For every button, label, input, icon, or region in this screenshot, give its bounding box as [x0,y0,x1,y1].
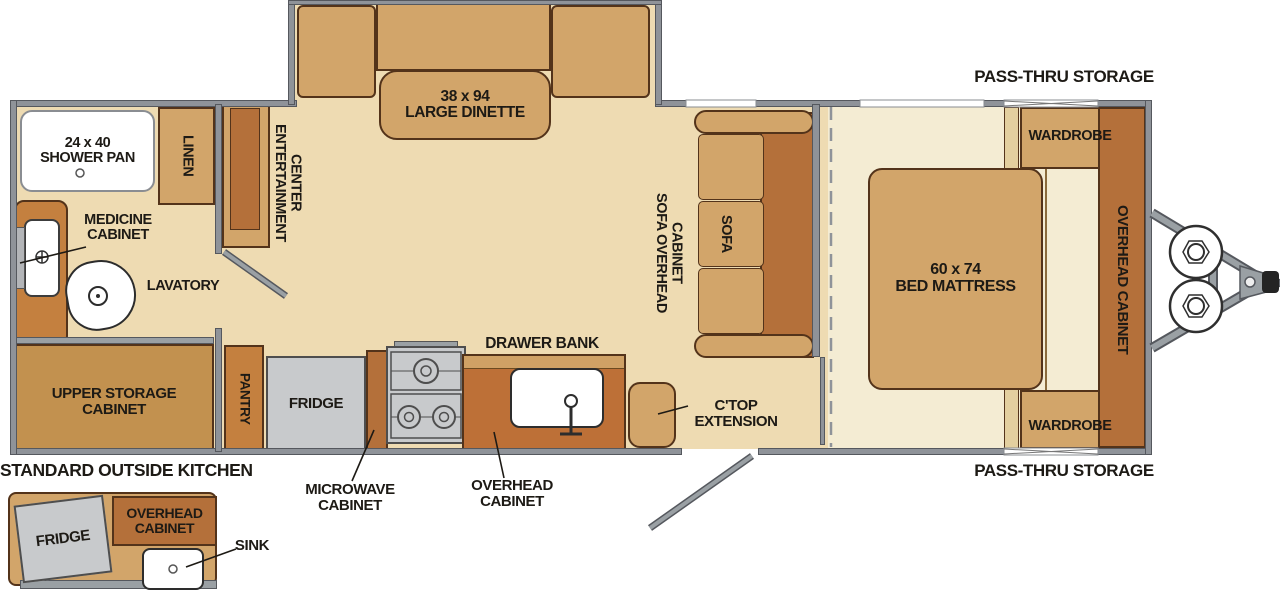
propane-tank-valve [1188,244,1204,260]
slideout-wall-left [288,0,295,105]
bathroom-wall-upper [215,104,222,254]
dinette-name-label: LARGE DINETTE [405,105,525,121]
pantry-label: PANTRY [237,373,252,425]
microwave-label-1: MICROWAVE [294,482,406,498]
outside-overhead-label-2: CABINET [135,521,194,536]
entertainment-label-2: CENTER [287,124,303,242]
bedroom-overhead-cabinet-label: OVERHEAD CABINET [1114,205,1130,354]
overhead-cabinet-kitchen-label: OVERHEAD CABINET [452,478,572,510]
bed-platform-edge [1045,169,1047,390]
hitch-bar-bottom [1152,285,1260,348]
wardrobe-top-label: WARDROBE [1014,129,1126,144]
propane-tank-collar [1183,241,1209,263]
shower-pan: 24 x 40 SHOWER PAN [20,110,155,192]
slideout-wall-top [288,0,662,5]
outside-fridge-label: FRIDGE [35,528,91,550]
outside-sink-label: SINK [220,538,284,554]
wall-right [1145,100,1152,455]
outside-overhead-label-1: OVERHEAD [126,506,202,521]
dinette-bench-right [551,5,650,98]
sofa-overhead-label-1: SOFA OVERHEAD [652,193,668,313]
outside-sink [142,548,204,590]
hitch-assembly [1152,213,1280,348]
dinette-back-cushion [376,3,551,71]
bed-mattress: 60 x 74 BED MATTRESS [868,168,1043,390]
wardrobe-bottom-label: WARDROBE [1014,419,1126,434]
wall-bottom-right [758,448,1152,455]
hitch-bar-top [1152,213,1260,278]
dinette-table: 38 x 94 LARGE DINETTE [379,70,551,140]
lavatory-label: LAVATORY [133,279,233,294]
entry-door [650,456,752,528]
ctop-label-1: C'TOP [682,398,790,414]
rv-floorplan: 24 x 40 SHOWER PAN LINEN 38 x 94 LARGE D… [0,0,1280,593]
hitch-jack [1262,271,1279,293]
microwave-cabinet-label: MICROWAVE CABINET [294,482,406,514]
wall-top-right [655,100,1152,107]
sofa-overhead-label-2: CABINET [668,193,684,313]
outside-fridge: FRIDGE [14,495,113,583]
pass-thru-storage-top-label: PASS-THRU STORAGE [958,68,1170,86]
wall-top-left [10,100,297,107]
slideout-wall-right [655,0,662,105]
hitch-coupler-hole [1245,277,1255,287]
outside-overhead-cabinet: OVERHEAD CABINET [112,496,217,546]
bed-name-label: BED MATTRESS [895,279,1015,296]
hitch-bar-top-outline [1152,213,1260,278]
outside-kitchen-rail [16,337,214,344]
bedroom-wall-upper [812,104,820,357]
dinette-bench-left [297,5,376,98]
drawer-bank-label: DRAWER BANK [462,336,622,352]
hitch-bar-bottom-outline [1152,285,1260,348]
pantry-cabinet: PANTRY [224,345,264,453]
vanity-sink [24,219,60,297]
bedroom-overhead-cabinet-label-wrap: OVERHEAD CABINET [1100,150,1144,410]
entry-door-outline [650,456,752,528]
upper-storage-label-1: UPPER STORAGE [52,386,177,402]
entertainment-center-panel [230,108,260,230]
upper-storage-label-2: CABINET [82,402,146,418]
pass-thru-storage-bottom-label: PASS-THRU STORAGE [958,462,1170,480]
upper-storage-label: UPPER STORAGE CABINET [22,386,206,418]
bathroom-wall-lower [215,328,222,452]
entertainment-center-label: ENTERTAINMENT CENTER [266,110,308,255]
fridge-label: FRIDGE [289,396,343,412]
wall-bottom-left [10,448,682,455]
sofa-cushion [698,134,764,200]
fridge: FRIDGE [266,356,366,452]
outside-kitchen-title: STANDARD OUTSIDE KITCHEN [0,461,240,480]
sofa-overhead-cabinet-label: SOFA OVERHEAD CABINET [646,168,690,338]
wall-left [10,100,17,455]
bed-size-label: 60 x 74 [930,262,981,279]
sofa-label: SOFA [717,215,733,253]
sofa-armrest-bottom [694,334,814,358]
sofa-label-wrap: SOFA [712,196,738,272]
propane-tank-collar [1183,295,1209,317]
microwave-cabinet [366,350,388,454]
sofa-cushion [698,268,764,334]
propane-tank-valve [1188,298,1204,314]
medicine-cabinet-label-1: MEDICINE [72,213,164,228]
countertop-extension [628,382,676,448]
overhead-kitchen-label-1: OVERHEAD [452,478,572,494]
ctop-extension-label: C'TOP EXTENSION [682,398,790,430]
ctop-label-2: EXTENSION [682,414,790,430]
medicine-cabinet-label: MEDICINE CABINET [72,213,164,244]
sofa-back [760,112,814,358]
microwave-label-2: CABINET [294,498,406,514]
linen-cabinet: LINEN [158,107,215,205]
overhead-kitchen-label-2: CABINET [452,494,572,510]
propane-tank [1170,226,1222,278]
dinette-size-label: 38 x 94 [441,89,490,105]
shower-size-label: 24 x 40 [65,136,111,151]
bedroom-wall-lower [820,357,825,445]
sofa-armrest-top [694,110,814,134]
entertainment-label-1: ENTERTAINMENT [271,124,287,242]
kitchen-sink [510,368,604,428]
medicine-cabinet-label-2: CABINET [72,228,164,243]
propane-tank [1170,280,1222,332]
toilet-flush-dot [96,294,100,298]
linen-label: LINEN [179,135,195,177]
stove-cooktop [386,346,466,444]
shower-name-label: SHOWER PAN [40,151,135,166]
hitch-coupler [1240,266,1280,299]
